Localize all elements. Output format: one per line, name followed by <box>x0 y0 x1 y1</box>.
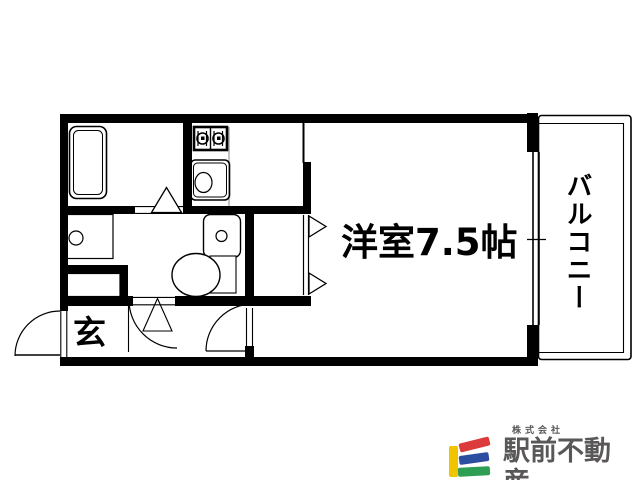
wall-kitchen-room <box>303 162 311 214</box>
entrance-label: 玄 <box>73 306 106 354</box>
toilet <box>172 215 241 297</box>
wall-room-door-post <box>245 346 254 366</box>
wall-washer-entry <box>63 265 127 273</box>
room-door <box>206 304 253 351</box>
kitchen-sink <box>191 160 230 200</box>
wall-closet-left <box>245 206 254 306</box>
company-logo: 株式会社 駅前不動産 <box>446 423 626 475</box>
window <box>527 152 546 325</box>
company-prefix: 株式会社 <box>512 423 626 436</box>
wall-right-top <box>527 113 538 152</box>
wall-right-bottom <box>527 325 538 366</box>
main-room-label: 洋室7.5帖 <box>341 212 518 266</box>
wall-bottom <box>60 357 538 366</box>
wall-bath-bottom <box>63 206 135 214</box>
balcony-label: バルコニー <box>564 172 590 322</box>
bathtub <box>70 127 107 199</box>
closet-folding-door <box>304 215 327 295</box>
entry-door <box>15 311 67 357</box>
shoe-cabinet <box>67 274 120 297</box>
logo-bar-blue <box>459 452 490 465</box>
bath-folding-door <box>135 188 183 214</box>
company-name: 駅前不動産 <box>503 436 626 480</box>
logo-bar-yellow <box>449 446 458 477</box>
wall-top <box>60 114 538 123</box>
washroom-door <box>129 297 178 352</box>
gas-stove-icon <box>194 127 227 150</box>
company-logo-text: 株式会社 駅前不動産 <box>503 423 626 480</box>
wall-hall-left <box>63 296 133 306</box>
floor-plan-drawing <box>0 0 640 480</box>
logo-bar-red <box>458 436 490 452</box>
logo-bar-green <box>458 466 490 477</box>
company-logo-icon <box>446 433 498 475</box>
washing-machine-pan <box>66 215 113 259</box>
floor-plan-page: 洋室7.5帖 バルコニー 玄 株式会社 駅前不動産 <box>0 0 640 480</box>
